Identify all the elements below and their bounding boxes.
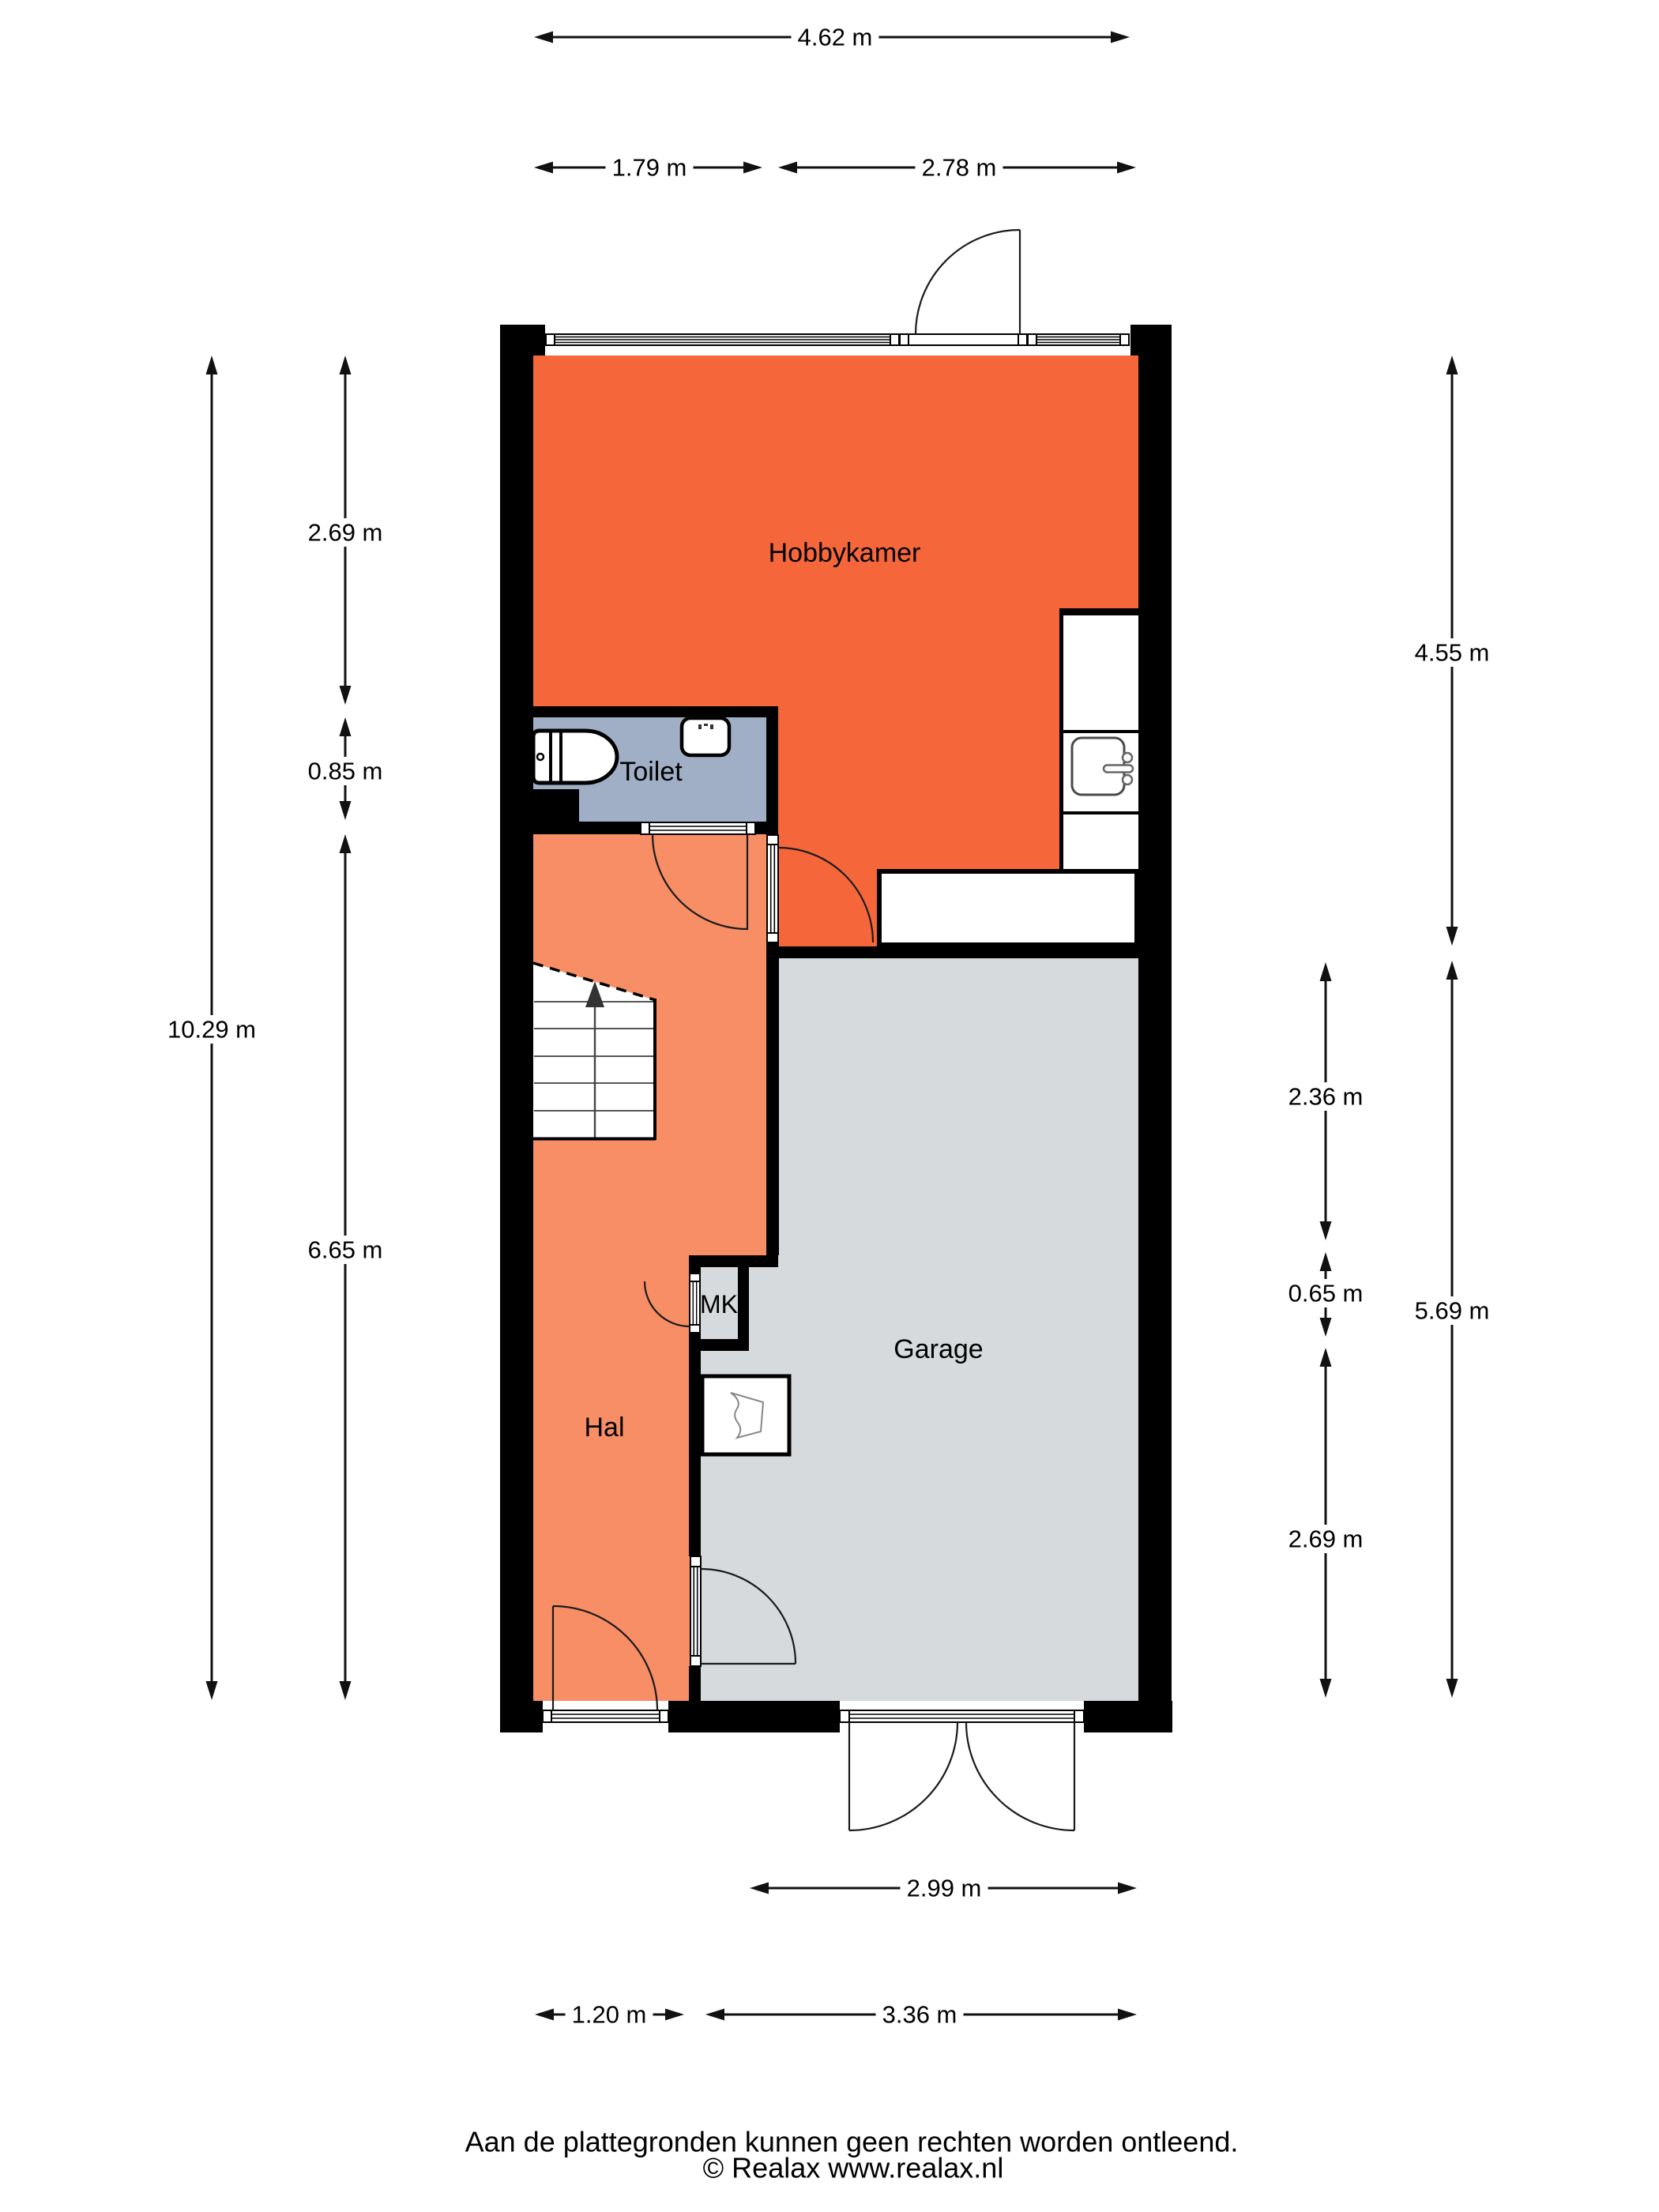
svg-text:2.99 m: 2.99 m [907,1875,982,1902]
svg-text:2.69 m: 2.69 m [1288,1525,1364,1553]
svg-text:Hobbykamer: Hobbykamer [769,538,921,568]
svg-text:6.65 m: 6.65 m [308,1236,383,1264]
svg-text:2.78 m: 2.78 m [922,154,997,182]
svg-text:4.55 m: 4.55 m [1415,639,1490,667]
svg-text:0.85 m: 0.85 m [308,758,383,785]
svg-text:2.36 m: 2.36 m [1288,1083,1364,1111]
svg-text:1.79 m: 1.79 m [612,154,687,182]
svg-text:3.36 m: 3.36 m [882,2001,957,2029]
svg-text:Garage: Garage [893,1334,983,1364]
svg-text:10.29 m: 10.29 m [167,1016,256,1044]
svg-text:Hal: Hal [584,1413,624,1443]
svg-text:Toilet: Toilet [619,757,683,787]
svg-text:2.69 m: 2.69 m [308,519,383,547]
svg-text:© Realax www.realax.nl: © Realax www.realax.nl [703,2152,1004,2184]
svg-text:1.20 m: 1.20 m [572,2001,647,2029]
svg-text:0.65 m: 0.65 m [1288,1280,1364,1307]
svg-text:5.69 m: 5.69 m [1415,1297,1490,1325]
svg-text:4.62 m: 4.62 m [798,24,873,51]
svg-text:MK: MK [700,1290,738,1319]
